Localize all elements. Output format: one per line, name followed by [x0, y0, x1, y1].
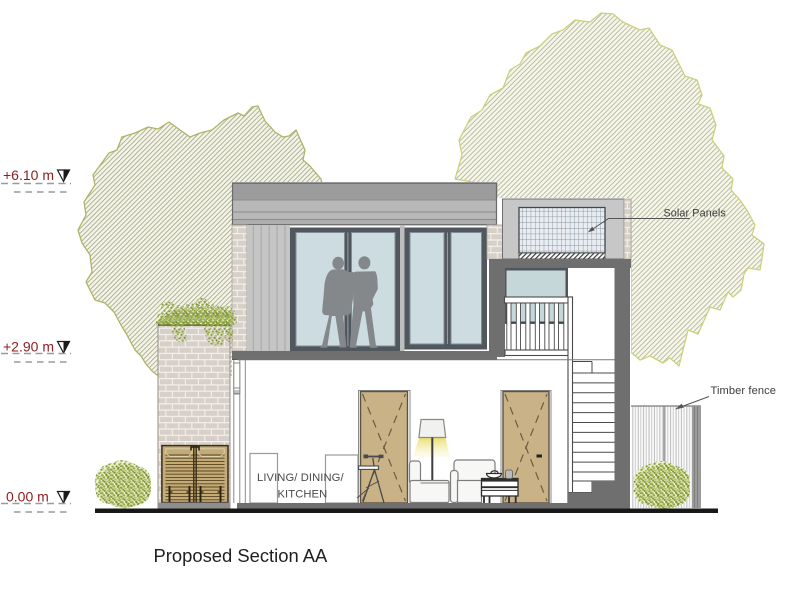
svg-text:+6.10 m: +6.10 m — [3, 167, 54, 183]
svg-text:0.00 m: 0.00 m — [6, 489, 49, 505]
svg-text:KITCHEN: KITCHEN — [278, 489, 328, 501]
svg-text:LIVING/ DINING/: LIVING/ DINING/ — [257, 472, 344, 484]
svg-text:+2.90 m: +2.90 m — [3, 339, 54, 355]
svg-text:Timber fence: Timber fence — [711, 385, 777, 397]
svg-text:Proposed Section AA: Proposed Section AA — [154, 545, 329, 566]
svg-text:Solar Panels: Solar Panels — [664, 208, 727, 220]
